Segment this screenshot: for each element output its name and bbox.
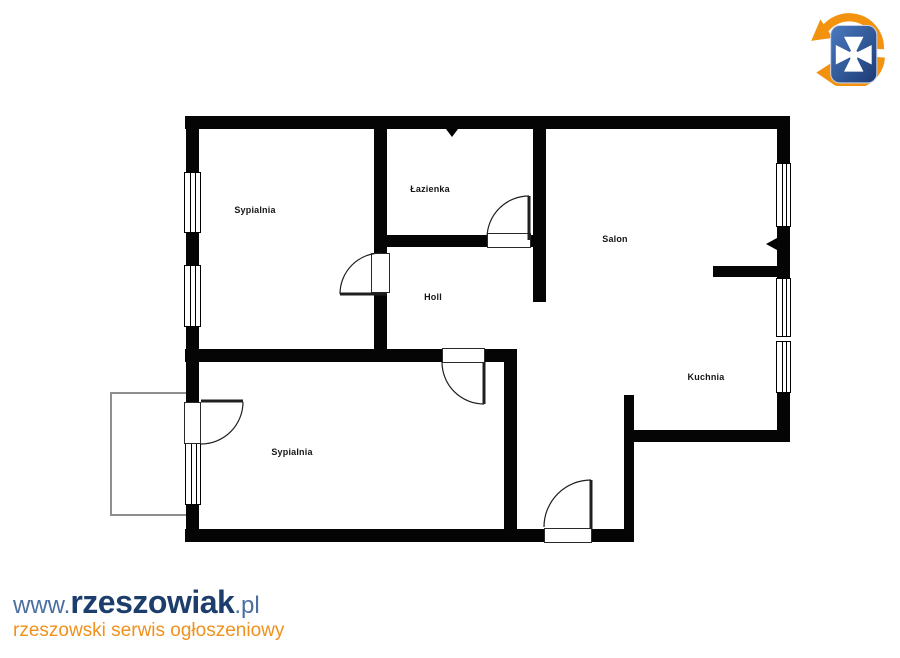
- site-tagline: rzeszowski serwis ogłoszeniowy: [13, 621, 284, 640]
- door-arc-balcony: [201, 402, 243, 444]
- window-bedroom1-lower: [184, 265, 201, 327]
- footer-branding: www.rzeszowiak.pl rzeszowski serwis ogło…: [13, 586, 284, 640]
- room-label-kuchnia: Kuchnia: [688, 372, 725, 382]
- door-arc-entrance: [544, 480, 591, 527]
- wall-bedroom1-right-a: [374, 116, 387, 253]
- door-entrance: [544, 528, 592, 543]
- rzeszowiak-logo: [803, 4, 885, 86]
- door-arc-bathroom: [487, 196, 529, 238]
- window-pane: [191, 444, 197, 504]
- wall-kitchen-bottom: [624, 430, 790, 442]
- site-url-www: www.: [13, 592, 70, 619]
- door-balcony: [184, 402, 201, 444]
- wall-junction-tick-right: [766, 238, 777, 250]
- room-label-salon: Salon: [602, 234, 628, 244]
- wall-salon-kitchen: [713, 266, 777, 277]
- door-bathroom: [487, 233, 531, 248]
- site-url: www.rzeszowiak.pl: [13, 586, 284, 618]
- door-swing-arcs: [0, 0, 900, 658]
- wall-left-c: [186, 326, 199, 403]
- wall-junction-tick-top: [446, 129, 458, 137]
- wall-bath-bottom-b: [530, 235, 546, 247]
- wall-bedroom2-right: [504, 349, 517, 542]
- room-label-holl: Holl: [424, 292, 442, 302]
- window-divider: [776, 336, 791, 342]
- site-url-tld: .pl: [234, 592, 259, 619]
- wall-kitchen-left: [624, 395, 634, 542]
- window-salon: [776, 163, 791, 227]
- window-kitchen: [776, 278, 791, 393]
- wall-mid-a: [185, 349, 443, 362]
- window-pane: [782, 164, 787, 226]
- wall-bottom-a: [185, 529, 545, 542]
- wall-bath-bottom-a: [374, 235, 488, 247]
- room-label-lazienka: Łazienka: [410, 184, 450, 194]
- wall-right-a: [777, 116, 790, 164]
- floorplan-page: Sypialnia Łazienka Salon Holl Kuchnia Sy…: [0, 0, 900, 658]
- window-pane: [190, 173, 196, 232]
- wall-left-a: [186, 116, 199, 173]
- window-pane: [190, 266, 196, 326]
- room-label-sypialnia-bottom: Sypialnia: [271, 447, 312, 457]
- site-name: rzeszowiak: [70, 584, 234, 620]
- window-bedroom1-upper: [184, 172, 201, 233]
- wall-left-b: [186, 232, 199, 266]
- room-label-sypialnia-top: Sypialnia: [234, 205, 275, 215]
- wall-bath-salon: [533, 116, 546, 302]
- door-bedroom2: [442, 348, 485, 363]
- wall-top: [185, 116, 790, 129]
- window-bedroom2-balcony: [185, 443, 201, 505]
- door-bedroom1: [371, 253, 390, 293]
- wall-right-b: [777, 226, 790, 279]
- door-arc-bedroom2: [442, 362, 484, 404]
